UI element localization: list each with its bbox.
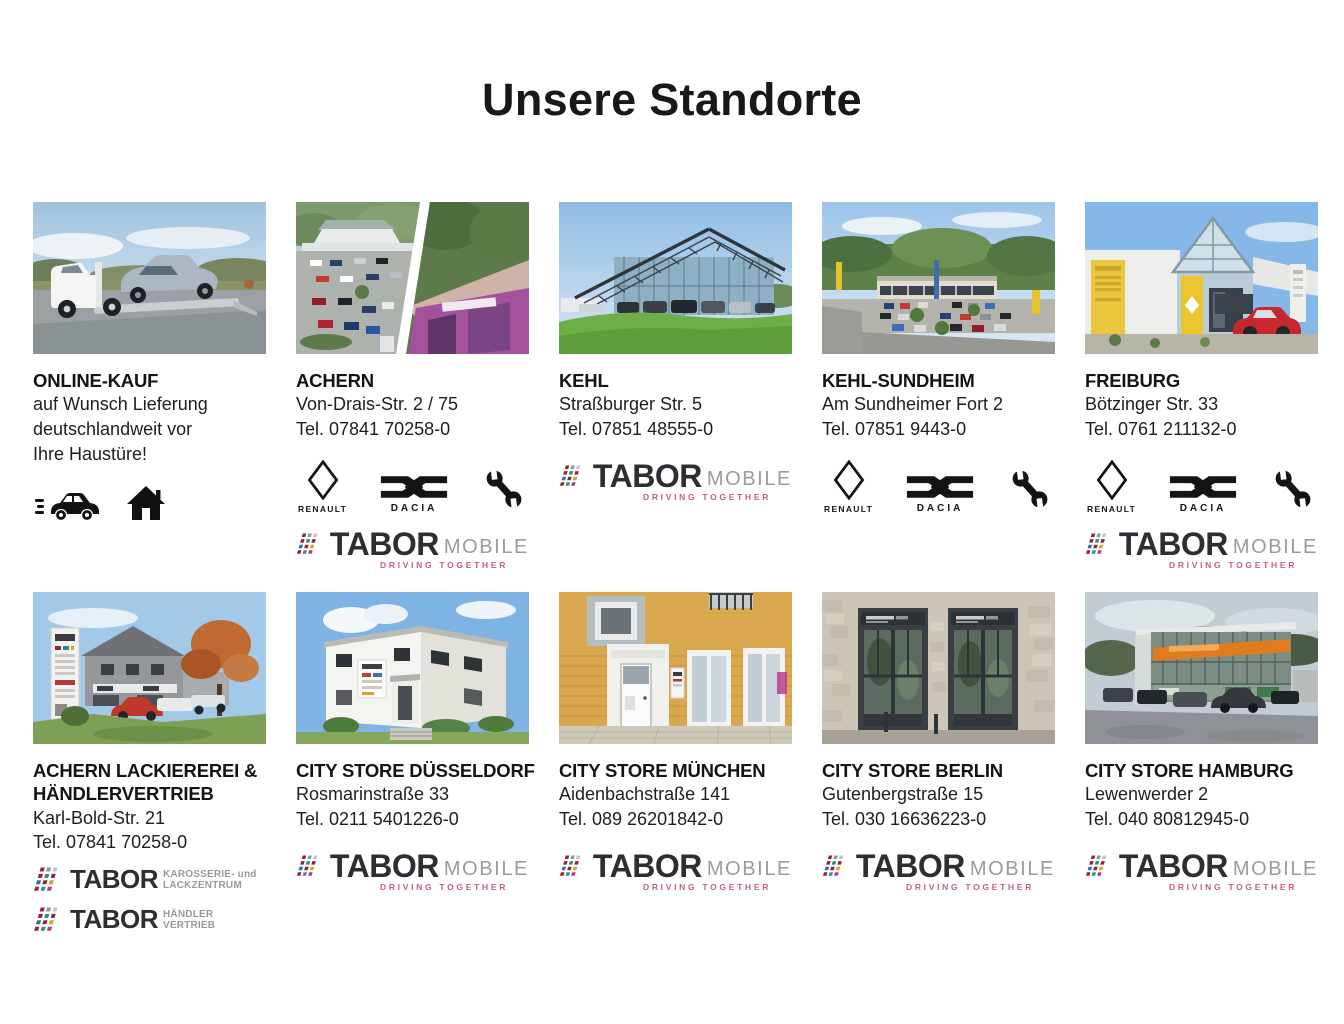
tabor-mobile-text: MOBILE [444, 858, 529, 881]
renault-logo: RENAULT [824, 460, 873, 514]
photo-illustration-achern [296, 202, 529, 354]
tabor-dots-icon [559, 461, 587, 491]
renault-diamond-icon [307, 460, 339, 500]
location-card-achern: ACHERN Von-Drais-Str. 2 / 75 Tel. 07841 … [296, 202, 529, 592]
location-name: KEHL [559, 369, 792, 392]
wrench-icon [481, 464, 527, 514]
photo-illustration-lackzentrum [33, 592, 266, 744]
tabor-dots-icon [1085, 851, 1113, 881]
dacia-logo: DACIA [904, 475, 976, 514]
tabor-brand-text: TABOR [330, 848, 439, 885]
tabor-brand-text: TABOR [856, 848, 965, 885]
tabor-dots-icon [296, 851, 324, 881]
wrench-icon [1007, 464, 1053, 514]
location-photo-hamburg [1085, 592, 1318, 744]
location-address: Bötzinger Str. 33 [1085, 392, 1318, 417]
location-photo-achern-lackiererei [33, 592, 266, 744]
location-photo-kehl [559, 202, 792, 354]
tabor-haendler-logo: TABOR HÄNDLERVERTRIEB [33, 904, 266, 935]
tabor-mobile-logo: TABOR MOBILE DRIVING TOGETHER [1085, 848, 1318, 892]
location-photo-muenchen [559, 592, 792, 744]
photo-illustration-berlin [822, 592, 1055, 744]
delivery-icons [33, 485, 266, 521]
locations-grid: ONLINE-KAUF auf Wunsch Lieferung deutsch… [33, 202, 1318, 935]
location-card-muenchen: CITY STORE MÜNCHEN Aidenbachstraße 141 T… [559, 592, 792, 935]
tabor-mobile-logo: TABOR MOBILE DRIVING TOGETHER [1085, 526, 1318, 570]
tabor-tagline: DRIVING TOGETHER [643, 882, 792, 892]
tabor-tagline: DRIVING TOGETHER [1169, 882, 1318, 892]
location-phone: Tel. 0211 5401226-0 [296, 807, 529, 832]
photo-illustration-hamburg [1085, 592, 1318, 744]
location-phone: Tel. 040 80812945-0 [1085, 807, 1318, 832]
tabor-tagline: DRIVING TOGETHER [1169, 560, 1318, 570]
location-phone: Tel. 07841 70258-0 [33, 830, 266, 855]
tabor-dots-icon [296, 529, 324, 559]
dacia-label: DACIA [391, 503, 438, 514]
tabor-tagline: DRIVING TOGETHER [380, 560, 529, 570]
location-name: ACHERN LACKIEREREI & HÄNDLERVERTRIEB [33, 759, 266, 806]
brand-logos: RENAULT DACIA [1085, 454, 1318, 514]
location-name: CITY STORE MÜNCHEN [559, 759, 792, 782]
dacia-logo: DACIA [1167, 475, 1239, 514]
brand-logos: RENAULT DACIA [296, 454, 529, 514]
tabor-mobile-logo: TABOR MOBILE DRIVING TOGETHER [822, 848, 1055, 892]
location-phone: Tel. 030 16636223-0 [822, 807, 1055, 832]
renault-label: RENAULT [824, 504, 873, 514]
location-photo-duesseldorf [296, 592, 529, 744]
tabor-karosserie-logo: TABOR KAROSSERIE- undLACKZENTRUM [33, 864, 266, 895]
brand-logos: RENAULT DACIA [822, 454, 1055, 514]
location-address: Karl-Bold-Str. 21 [33, 806, 266, 831]
wrench-icon [1270, 464, 1316, 514]
location-address: Von-Drais-Str. 2 / 75 [296, 392, 529, 417]
location-phone: Tel. 07841 70258-0 [296, 417, 529, 442]
photo-illustration-kehl [559, 202, 792, 354]
location-address: Aidenbachstraße 141 [559, 782, 792, 807]
location-phone: Tel. 0761 211132-0 [1085, 417, 1318, 442]
location-card-berlin: CITY STORE BERLIN Gutenbergstraße 15 Tel… [822, 592, 1055, 935]
delivery-car-icon [35, 485, 99, 521]
tabor-mobile-text: MOBILE [1233, 858, 1318, 881]
location-card-achern-lackiererei: ACHERN LACKIEREREI & HÄNDLERVERTRIEB Kar… [33, 592, 266, 935]
location-card-hamburg: CITY STORE HAMBURG Lewenwerder 2 Tel. 04… [1085, 592, 1318, 935]
tabor-dots-icon [33, 906, 65, 933]
tabor-brand-text: TABOR [330, 526, 439, 563]
dacia-logo: DACIA [378, 475, 450, 514]
location-name: CITY STORE HAMBURG [1085, 759, 1318, 782]
location-address: Straßburger Str. 5 [559, 392, 792, 417]
location-photo-achern [296, 202, 529, 354]
tabor-tagline: DRIVING TOGETHER [643, 492, 792, 502]
renault-diamond-icon [1096, 460, 1128, 500]
renault-logo: RENAULT [298, 460, 347, 514]
tabor-brand-text: TABOR [1119, 848, 1228, 885]
tabor-haendler-lines: HÄNDLERVERTRIEB [163, 909, 215, 931]
location-description: auf Wunsch Lieferung deutschlandweit vor… [33, 392, 266, 466]
location-address: Lewenwerder 2 [1085, 782, 1318, 807]
page-title: Unsere Standorte [0, 74, 1344, 126]
tabor-mobile-logo: TABOR MOBILE DRIVING TOGETHER [296, 848, 529, 892]
location-card-online-kauf: ONLINE-KAUF auf Wunsch Lieferung deutsch… [33, 202, 266, 592]
location-name: CITY STORE BERLIN [822, 759, 1055, 782]
tabor-mobile-logo: TABOR MOBILE DRIVING TOGETHER [559, 458, 792, 502]
tabor-tagline: DRIVING TOGETHER [380, 882, 529, 892]
tabor-mobile-text: MOBILE [707, 468, 792, 491]
tabor-mobile-text: MOBILE [444, 536, 529, 559]
location-photo-freiburg [1085, 202, 1318, 354]
dacia-link-icon [1167, 475, 1239, 499]
tabor-dots-icon [33, 866, 65, 893]
tabor-brand-text: TABOR [1119, 526, 1228, 563]
tabor-mobile-logo: TABOR MOBILE DRIVING TOGETHER [559, 848, 792, 892]
renault-label: RENAULT [298, 504, 347, 514]
dacia-label: DACIA [1180, 503, 1227, 514]
house-icon [127, 485, 165, 521]
photo-illustration-duesseldorf [296, 592, 529, 744]
location-phone: Tel. 07851 9443-0 [822, 417, 1055, 442]
location-card-kehl-sundheim: KEHL-SUNDHEIM Am Sundheimer Fort 2 Tel. … [822, 202, 1055, 592]
tabor-brand-text: TABOR [70, 904, 158, 935]
dacia-link-icon [378, 475, 450, 499]
tabor-brand-text: TABOR [593, 458, 702, 495]
photo-illustration-muenchen [559, 592, 792, 744]
location-name: FREIBURG [1085, 369, 1318, 392]
location-address: Am Sundheimer Fort 2 [822, 392, 1055, 417]
tabor-mobile-logo: TABOR MOBILE DRIVING TOGETHER [296, 526, 529, 570]
location-photo-kehl-sundheim [822, 202, 1055, 354]
location-card-duesseldorf: CITY STORE DÜSSELDORF Rosmarinstraße 33 … [296, 592, 529, 935]
location-photo-berlin [822, 592, 1055, 744]
tabor-mobile-text: MOBILE [707, 858, 792, 881]
tabor-mobile-text: MOBILE [970, 858, 1055, 881]
photo-illustration-sundheim [822, 202, 1055, 354]
renault-label: RENAULT [1087, 504, 1136, 514]
location-name: ONLINE-KAUF [33, 369, 266, 392]
renault-diamond-icon [833, 460, 865, 500]
location-phone: Tel. 089 26201842-0 [559, 807, 792, 832]
location-name: CITY STORE DÜSSELDORF [296, 759, 529, 782]
location-address: Gutenbergstraße 15 [822, 782, 1055, 807]
location-phone: Tel. 07851 48555-0 [559, 417, 792, 442]
dacia-link-icon [904, 475, 976, 499]
tabor-dots-icon [559, 851, 587, 881]
location-card-kehl: KEHL Straßburger Str. 5 Tel. 07851 48555… [559, 202, 792, 592]
tabor-brand-text: TABOR [70, 864, 158, 895]
location-name: KEHL-SUNDHEIM [822, 369, 1055, 392]
tabor-karosserie-lines: KAROSSERIE- undLACKZENTRUM [163, 869, 257, 891]
tabor-dots-icon [1085, 529, 1113, 559]
tabor-brand-text: TABOR [593, 848, 702, 885]
photo-illustration-truck [33, 202, 266, 354]
photo-illustration-freiburg [1085, 202, 1318, 354]
renault-logo: RENAULT [1087, 460, 1136, 514]
tabor-mobile-text: MOBILE [1233, 536, 1318, 559]
location-photo-online-kauf [33, 202, 266, 354]
tabor-tagline: DRIVING TOGETHER [906, 882, 1055, 892]
location-address: Rosmarinstraße 33 [296, 782, 529, 807]
location-name: ACHERN [296, 369, 529, 392]
location-card-freiburg: FREIBURG Bötzinger Str. 33 Tel. 0761 211… [1085, 202, 1318, 592]
dacia-label: DACIA [917, 503, 964, 514]
tabor-dots-icon [822, 851, 850, 881]
